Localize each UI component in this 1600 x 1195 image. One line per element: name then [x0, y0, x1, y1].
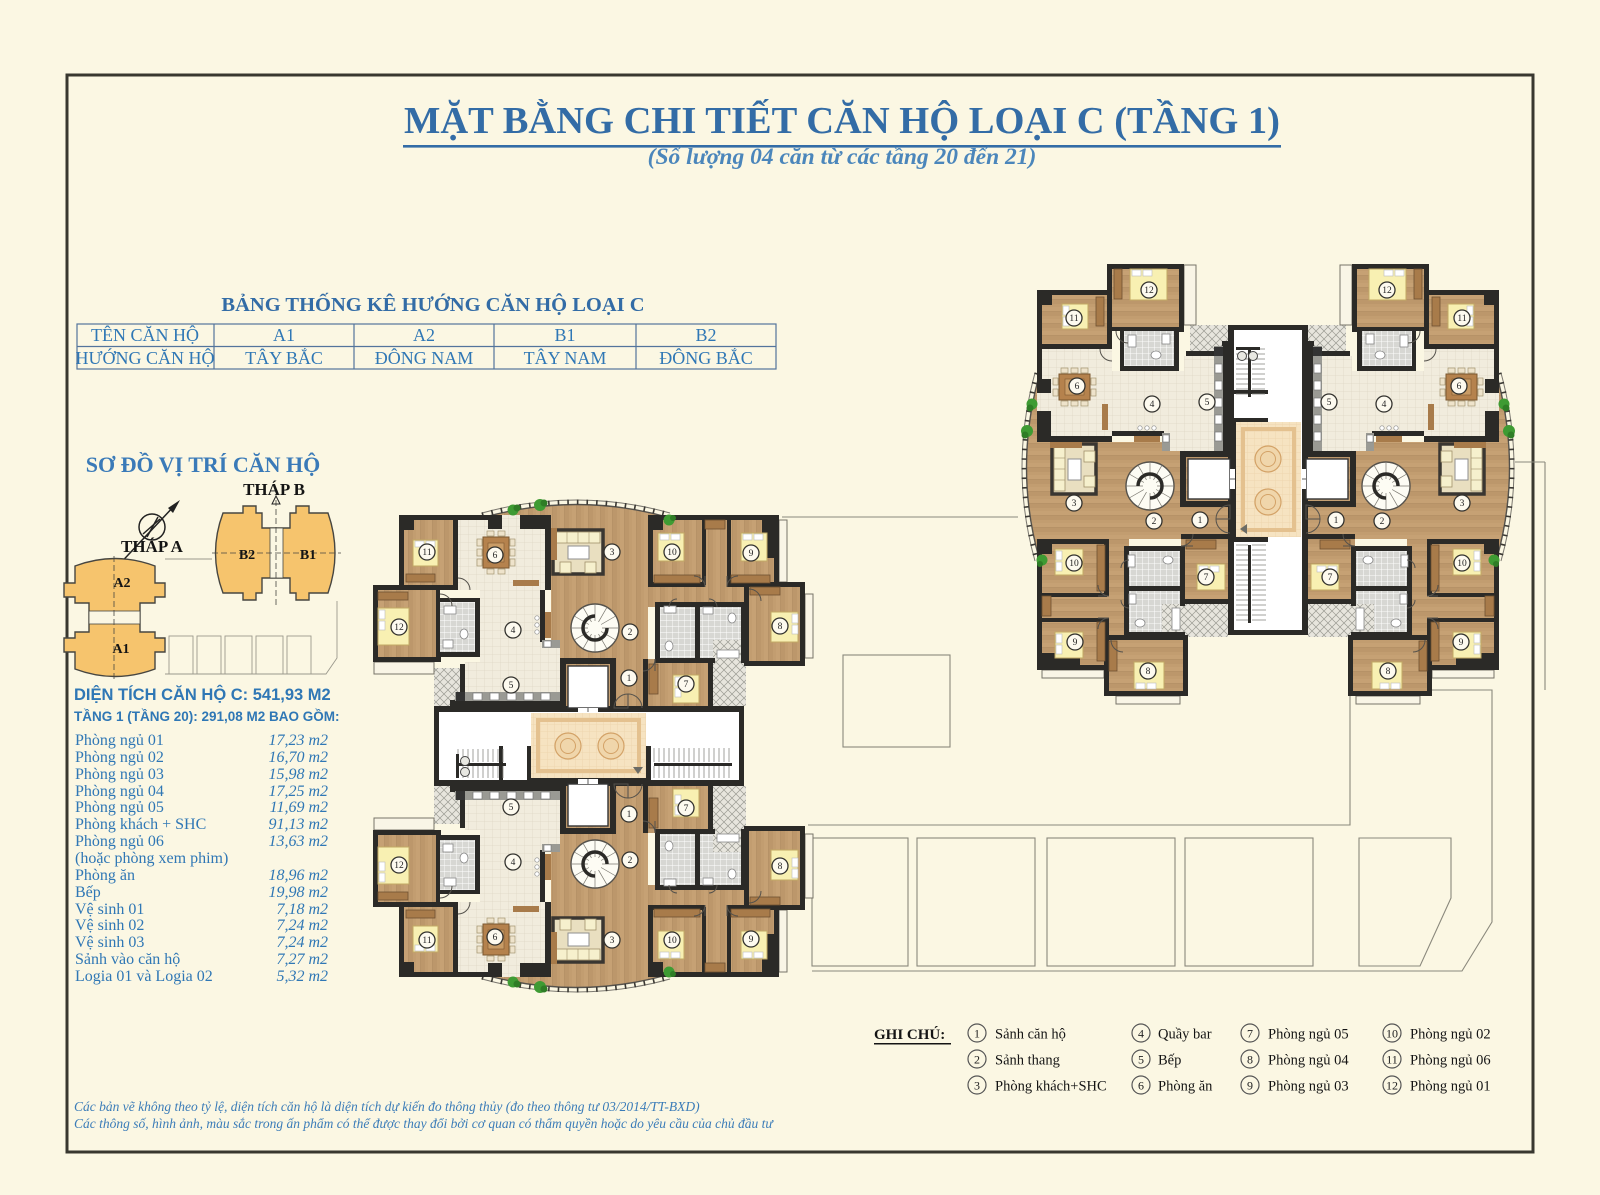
svg-text:6: 6	[493, 933, 498, 943]
svg-text:9: 9	[749, 549, 754, 559]
svg-text:SƠ ĐỒ VỊ TRÍ CĂN HỘ: SƠ ĐỒ VỊ TRÍ CĂN HỘ	[86, 452, 321, 477]
svg-text:BẢNG THỐNG KÊ HƯỚNG CĂN HỘ LOẠ: BẢNG THỐNG KÊ HƯỚNG CĂN HỘ LOẠI C	[221, 292, 644, 316]
svg-text:6: 6	[1075, 382, 1080, 392]
svg-text:6: 6	[1138, 1079, 1144, 1093]
svg-text:11: 11	[1457, 314, 1466, 324]
svg-text:A2: A2	[113, 576, 130, 591]
svg-text:Phòng ngủ 01: Phòng ngủ 01	[75, 732, 164, 749]
svg-text:7: 7	[1328, 573, 1333, 583]
svg-text:B2: B2	[695, 325, 716, 345]
svg-text:2: 2	[1380, 517, 1385, 527]
svg-text:Phòng ngủ 01: Phòng ngủ 01	[1410, 1079, 1491, 1095]
svg-text:Phòng ngủ 02: Phòng ngủ 02	[1410, 1027, 1491, 1043]
svg-text:7: 7	[1247, 1027, 1253, 1041]
svg-text:TÂY BẮC: TÂY BẮC	[245, 347, 323, 368]
svg-text:Phòng ngủ 06: Phòng ngủ 06	[1410, 1053, 1491, 1069]
svg-text:12: 12	[1144, 286, 1154, 296]
svg-text:7: 7	[684, 680, 689, 690]
svg-text:A2: A2	[413, 325, 435, 345]
svg-text:1: 1	[627, 810, 632, 820]
svg-text:B1: B1	[554, 325, 575, 345]
svg-text:4: 4	[511, 858, 516, 868]
svg-text:5: 5	[509, 681, 514, 691]
svg-text:1: 1	[974, 1027, 980, 1041]
svg-text:Phòng ăn: Phòng ăn	[1158, 1079, 1213, 1095]
svg-text:3: 3	[1460, 499, 1465, 509]
svg-text:7,18 m2: 7,18 m2	[276, 901, 328, 918]
svg-text:A1: A1	[273, 325, 295, 345]
svg-text:5: 5	[1138, 1053, 1144, 1067]
svg-text:4: 4	[511, 626, 516, 636]
svg-text:THÁP B: THÁP B	[243, 480, 305, 499]
svg-text:Bếp: Bếp	[75, 884, 101, 901]
svg-text:ĐÔNG NAM: ĐÔNG NAM	[375, 347, 474, 368]
svg-text:9: 9	[1247, 1079, 1253, 1093]
svg-text:MẶT BẰNG CHI TIẾT CĂN HỘ LOẠI: MẶT BẰNG CHI TIẾT CĂN HỘ LOẠI C (TẦNG 1)	[404, 99, 1280, 142]
svg-text:1: 1	[1334, 516, 1339, 526]
svg-text:Sảnh căn hộ: Sảnh căn hộ	[995, 1027, 1066, 1043]
svg-text:3: 3	[1072, 499, 1077, 509]
svg-text:2: 2	[1152, 517, 1157, 527]
svg-text:Phòng khách+SHC: Phòng khách+SHC	[995, 1079, 1107, 1095]
svg-text:17,25 m2: 17,25 m2	[268, 783, 328, 800]
svg-text:12: 12	[394, 623, 404, 633]
svg-text:Phòng ngủ 03: Phòng ngủ 03	[1268, 1079, 1349, 1095]
svg-text:15,98 m2: 15,98 m2	[268, 766, 328, 783]
svg-text:GHI CHÚ:: GHI CHÚ:	[874, 1026, 945, 1043]
svg-text:7: 7	[1204, 573, 1209, 583]
svg-text:(hoặc phòng xem phim): (hoặc phòng xem phim)	[75, 850, 228, 867]
svg-text:9: 9	[1459, 638, 1464, 648]
svg-text:Sảnh thang: Sảnh thang	[995, 1053, 1060, 1069]
svg-text:1: 1	[627, 674, 632, 684]
svg-text:17,23 m2: 17,23 m2	[268, 732, 328, 749]
svg-text:11,69 m2: 11,69 m2	[270, 799, 328, 816]
svg-text:11: 11	[422, 548, 431, 558]
svg-text:TÊN CĂN HỘ: TÊN CĂN HỘ	[91, 324, 199, 345]
svg-text:5,32 m2: 5,32 m2	[276, 968, 328, 985]
svg-text:B2: B2	[239, 548, 255, 563]
svg-text:6: 6	[1457, 382, 1462, 392]
svg-text:3: 3	[974, 1079, 980, 1093]
svg-text:TẦNG 1 (TẦNG 20): 291,08 M2 BA: TẦNG 1 (TẦNG 20): 291,08 M2 BAO GỒM:	[74, 709, 340, 724]
svg-text:Phòng ngủ 04: Phòng ngủ 04	[75, 783, 164, 800]
svg-text:10: 10	[1069, 559, 1079, 569]
svg-text:Phòng ngủ 04: Phòng ngủ 04	[1268, 1053, 1349, 1069]
svg-text:91,13 m2: 91,13 m2	[268, 816, 328, 833]
svg-text:Bếp: Bếp	[1158, 1053, 1181, 1069]
svg-text:12: 12	[394, 861, 404, 871]
svg-text:4: 4	[1138, 1027, 1144, 1041]
svg-text:Phòng ngủ 05: Phòng ngủ 05	[1268, 1027, 1349, 1043]
svg-text:Phòng ngủ 02: Phòng ngủ 02	[75, 749, 164, 766]
svg-text:3: 3	[610, 936, 615, 946]
svg-text:2: 2	[974, 1053, 980, 1067]
svg-text:HƯỚNG CĂN HỘ: HƯỚNG CĂN HỘ	[76, 347, 215, 368]
svg-text:4: 4	[1382, 400, 1387, 410]
svg-text:5: 5	[509, 803, 514, 813]
svg-text:Vệ sinh 02: Vệ sinh 02	[75, 917, 144, 934]
svg-text:8: 8	[778, 622, 783, 632]
svg-text:Phòng ngủ 06: Phòng ngủ 06	[75, 833, 164, 850]
svg-text:Phòng ăn: Phòng ăn	[75, 867, 135, 884]
svg-text:10: 10	[1386, 1027, 1398, 1041]
svg-text:2: 2	[628, 856, 633, 866]
svg-text:Phòng ngủ 05: Phòng ngủ 05	[75, 799, 164, 816]
svg-text:11: 11	[1386, 1053, 1398, 1067]
svg-text:10: 10	[667, 548, 677, 558]
svg-text:Sảnh vào căn hộ: Sảnh vào căn hộ	[75, 951, 180, 968]
svg-text:9: 9	[1073, 638, 1078, 648]
svg-text:DIỆN TÍCH CĂN HỘ C: 541,93 M2: DIỆN TÍCH CĂN HỘ C: 541,93 M2	[74, 685, 331, 704]
svg-text:2: 2	[628, 628, 633, 638]
svg-text:8: 8	[1247, 1053, 1253, 1067]
svg-text:7,24 m2: 7,24 m2	[276, 917, 328, 934]
svg-text:9: 9	[749, 935, 754, 945]
svg-text:A1: A1	[112, 642, 129, 657]
svg-text:Quầy bar: Quầy bar	[1158, 1027, 1212, 1043]
svg-text:ĐÔNG BẮC: ĐÔNG BẮC	[659, 347, 753, 368]
svg-text:3: 3	[610, 548, 615, 558]
svg-text:6: 6	[493, 551, 498, 561]
svg-text:12: 12	[1386, 1079, 1398, 1093]
svg-text:Phòng ngủ 03: Phòng ngủ 03	[75, 766, 164, 783]
svg-text:13,63 m2: 13,63 m2	[268, 833, 328, 850]
svg-text:THÁP A: THÁP A	[121, 537, 184, 556]
svg-text:Logia 01 và Logia 02: Logia 01 và Logia 02	[75, 968, 213, 985]
svg-text:8: 8	[1146, 667, 1151, 677]
svg-text:Các bản vẽ không theo tỷ lệ, d: Các bản vẽ không theo tỷ lệ, diện tích c…	[74, 1099, 700, 1114]
svg-text:Vệ sinh 01: Vệ sinh 01	[75, 901, 144, 918]
svg-text:(Số lượng 04 căn từ các tầng 2: (Số lượng 04 căn từ các tầng 20 đến 21)	[648, 144, 1037, 170]
svg-text:Vệ sinh 03: Vệ sinh 03	[75, 934, 144, 951]
svg-text:19,98 m2: 19,98 m2	[268, 884, 328, 901]
svg-text:7,27 m2: 7,27 m2	[276, 951, 328, 968]
svg-text:11: 11	[1069, 314, 1078, 324]
svg-text:10: 10	[667, 936, 677, 946]
svg-text:B1: B1	[300, 548, 316, 563]
svg-text:8: 8	[1386, 667, 1391, 677]
svg-text:5: 5	[1205, 398, 1210, 408]
svg-text:16,70 m2: 16,70 m2	[268, 749, 328, 766]
svg-text:18,96 m2: 18,96 m2	[268, 867, 328, 884]
svg-text:Các thông số, hình ảnh, màu sắ: Các thông số, hình ảnh, màu sắc trong ấn…	[74, 1116, 774, 1131]
svg-text:8: 8	[778, 862, 783, 872]
svg-text:11: 11	[422, 936, 431, 946]
svg-text:10: 10	[1457, 559, 1467, 569]
svg-text:Phòng khách + SHC: Phòng khách + SHC	[75, 816, 206, 833]
svg-text:5: 5	[1327, 398, 1332, 408]
svg-text:7,24 m2: 7,24 m2	[276, 934, 328, 951]
svg-text:4: 4	[1150, 400, 1155, 410]
svg-text:7: 7	[684, 804, 689, 814]
svg-text:TÂY NAM: TÂY NAM	[524, 347, 607, 368]
svg-text:1: 1	[1198, 516, 1203, 526]
svg-text:12: 12	[1382, 286, 1392, 296]
